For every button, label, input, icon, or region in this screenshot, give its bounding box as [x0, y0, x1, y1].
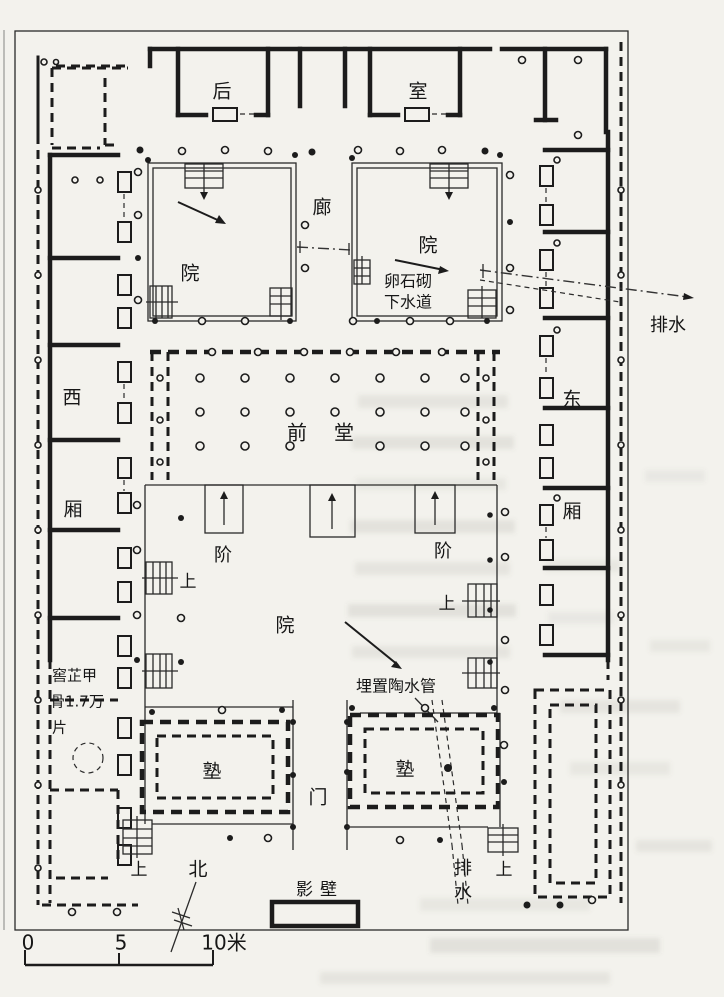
label-steps-left: 阶 [214, 545, 232, 566]
label-north: 北 [188, 859, 207, 881]
label-up-bottom-left: 上 [131, 860, 148, 880]
label-oracle-pit-line3: 片 [52, 719, 67, 737]
label-courtyard-left: 院 [180, 263, 199, 285]
label-buried-pipe: 埋置陶水管 [356, 677, 436, 696]
label-screen-wall: 影壁 [296, 880, 344, 900]
label-gate: 门 [308, 787, 327, 809]
label-up-front-west: 上 [180, 572, 197, 592]
label-drainage-gate-char2: 水 [454, 882, 472, 903]
label-up-bottom-right: 上 [496, 860, 513, 880]
floor-plan-drawing: 后 室 [0, 0, 724, 997]
label-east-wing: 厢 [562, 501, 581, 523]
label-rear-room: 室 [408, 81, 427, 103]
scanned-floor-plan-page: 后 室 [0, 0, 724, 997]
scale-tick-10: 10米 [201, 931, 246, 955]
label-west-wing: 厢 [63, 499, 82, 521]
label-front-hall-char1: 前 [287, 421, 307, 445]
scale-tick-0: 0 [22, 931, 35, 955]
label-drainage-east: 排水 [650, 315, 686, 336]
scale-tick-5: 5 [115, 931, 128, 955]
label-east: 东 [562, 389, 581, 411]
label-rear-hall: 后 [212, 81, 231, 103]
label-steps-right: 阶 [434, 541, 452, 562]
label-courtyard-right: 院 [418, 235, 437, 257]
label-courtyard-front: 院 [275, 615, 294, 637]
label-oracle-pit-line2: 骨1.7万 [50, 693, 104, 711]
label-gatehouse-right: 塾 [395, 759, 414, 781]
label-oracle-pit-line1: 窖芷甲 [52, 667, 97, 685]
label-cobble-drain-line2: 下水道 [384, 293, 432, 312]
label-cobble-drain-line1: 卵石砌 [384, 272, 432, 291]
label-front-hall-char2: 堂 [334, 421, 354, 445]
label-corridor: 廊 [312, 197, 331, 219]
label-drainage-gate-char1: 排 [454, 858, 472, 879]
label-west: 西 [62, 387, 81, 409]
label-up-front-east: 上 [439, 594, 456, 614]
label-gatehouse-left: 塾 [202, 761, 221, 783]
